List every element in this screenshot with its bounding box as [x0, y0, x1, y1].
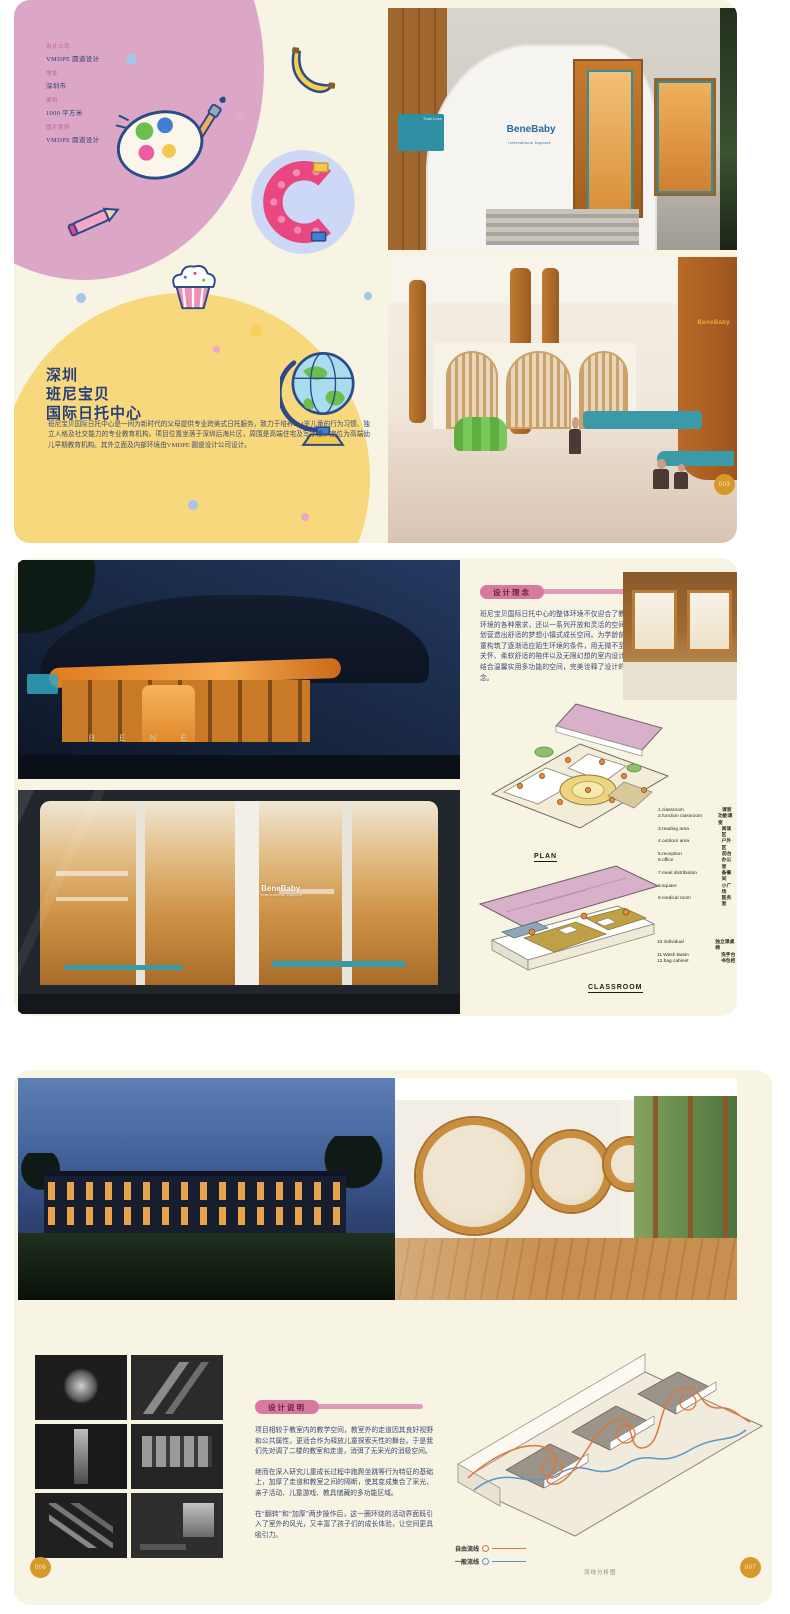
banana-icon [282, 40, 340, 98]
classroom-label: CLASSROOM [588, 984, 643, 993]
green-play-tunnel [454, 417, 506, 451]
page-number: 006 [30, 1557, 51, 1578]
photo-entrance-exterior: Than Love BeneBaby International Daycare [388, 8, 737, 250]
storefront-logo-sub: International Daycare [508, 141, 551, 145]
bw-photo [131, 1355, 223, 1420]
lit-windows-upper [48, 1182, 342, 1200]
dot-decoration [236, 112, 244, 120]
glass-reflection [18, 790, 460, 1014]
entrance-steps [486, 209, 640, 245]
diagram-caption: 流线分析图 [584, 1568, 617, 1576]
info-value: 深圳市 [46, 80, 99, 90]
bw-photo [131, 1424, 223, 1489]
project-intro: 班尼宝贝国际日托中心是一间为新时代的父母提供专业跨美式日托服务，致力于培养2~4… [48, 420, 370, 451]
description-paragraph: 项目相较于教室内的教学空间，教室外的走道因其良好视野和公共属性，更适合作为释放儿… [255, 1426, 433, 1458]
photo-interior-playground: BeneBaby 003 [388, 257, 737, 543]
dot-decoration [364, 292, 372, 300]
info-value: VMDPE 圆道设计 [46, 134, 99, 144]
plaza [18, 755, 460, 779]
glass-letters: B E N E [89, 733, 198, 743]
info-label: 设计公司 [46, 42, 99, 50]
entrance-door [573, 59, 643, 218]
bw-photo [35, 1355, 127, 1420]
window-seat [623, 662, 737, 700]
teal-bench [583, 411, 702, 428]
plants [720, 8, 737, 250]
info-value: VMDPE 圆道设计 [46, 53, 99, 63]
flow-legend-free: 自由流线 [455, 1544, 526, 1553]
project-info: 设计公司 VMDPE 圆道设计 地址 深圳市 面积 1000 平方米 图片提供 … [46, 36, 99, 144]
description-paragraph: 继而在深入研究儿童成长过程中跑爬坐跳等行为特征的基础上，加厚了走道和教室之间的隔… [255, 1468, 433, 1500]
photo-night-exterior: B E N E [18, 560, 460, 779]
mullion [688, 1096, 693, 1243]
circle-window [416, 1118, 533, 1234]
mullion [653, 1096, 658, 1243]
mullion [723, 1096, 728, 1243]
entrance-window [657, 81, 713, 194]
spread-description: 设计说明 项目相较于教室内的教学空间，教室外的走道因其良好视野和公共属性，更适合… [14, 1070, 772, 1605]
info-label: 地址 [46, 69, 99, 77]
wood-column [409, 280, 426, 423]
page-number: 003 [714, 474, 735, 495]
interior-wall-sign: BeneBaby [697, 320, 730, 326]
child-figure [569, 429, 581, 455]
info-label: 图片提供 [46, 123, 99, 131]
slat-arch [506, 351, 571, 429]
circle-window [532, 1131, 611, 1212]
wood-wall-right [678, 257, 737, 480]
dot-decoration [213, 346, 220, 353]
spread-concept: B E N E BeneBaby International Daycare 设… [14, 558, 737, 1016]
plan-axonometric-drawing [484, 698, 674, 860]
lawn [18, 1233, 395, 1300]
dot-decoration [76, 293, 86, 303]
concept-text: 班尼宝贝国际日托中心的整体环境不仅迎合了教学环境的各种需求，还以一系列开放和灵活… [480, 610, 632, 684]
palette-icon [109, 82, 227, 200]
classroom-axonometric-drawing [466, 860, 662, 1000]
teal-bench [657, 451, 734, 465]
teal-signboard [27, 674, 58, 694]
wall-plaque: Than Love [398, 114, 443, 150]
window [687, 590, 732, 652]
page-number: 007 [740, 1557, 761, 1578]
bw-photo [35, 1493, 127, 1558]
wood-floor [395, 1238, 737, 1300]
photo-storefront: BeneBaby International Daycare [18, 790, 460, 1014]
lego-letter-c-icon [249, 148, 357, 256]
storefront-logo: BeneBaby [507, 124, 556, 135]
cupcake-icon [164, 256, 222, 314]
project-title: 深圳 班尼宝贝 国际日托中心 [46, 366, 142, 423]
child-figure [674, 472, 688, 489]
description-text: 项目相较于教室内的教学空间，教室外的走道因其良好视野和公共属性，更适合作为释放儿… [255, 1426, 433, 1551]
classroom-legend: 10.individual独立课桌椅 11.Wash Basin洗手台 12.b… [657, 940, 737, 965]
photo-circle-corridor [395, 1078, 737, 1300]
plan-legend: 1.classroom课室 2.function classroom功能课室 3… [658, 808, 736, 909]
pencil-icon [64, 198, 128, 242]
photo-dusk-exterior [18, 1078, 395, 1300]
photo-corridor-interior [623, 572, 737, 700]
spread-cover: 设计公司 VMDPE 圆道设计 地址 深圳市 面积 1000 平方米 图片提供 … [14, 0, 737, 543]
section-badge-description: 设计说明 [255, 1400, 427, 1414]
bw-photo [35, 1424, 127, 1489]
info-value: 1000 平方米 [46, 107, 99, 117]
info-label: 面积 [46, 96, 99, 104]
dot-decoration [126, 54, 137, 65]
window [632, 590, 677, 652]
glass-wall [634, 1096, 737, 1243]
lit-windows-lower [48, 1207, 342, 1225]
dot-decoration [188, 500, 198, 510]
flow-legend-general: 一般流线 [455, 1557, 526, 1566]
dot-decoration [301, 513, 309, 521]
description-paragraph: 在“翻转”和“加厚”两步操作后，这一圈环绕的活动界面既引入了室外的风光，又丰富了… [255, 1510, 433, 1542]
dot-decoration [250, 324, 263, 337]
child-figure [653, 469, 669, 489]
bw-photo [131, 1493, 223, 1558]
